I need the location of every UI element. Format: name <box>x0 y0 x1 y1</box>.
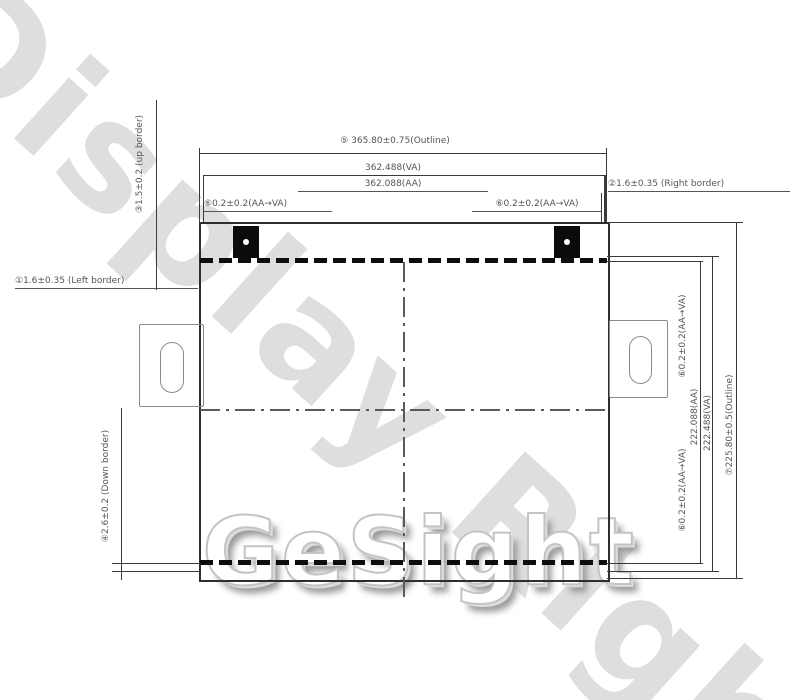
pad-hole <box>564 239 570 245</box>
dim-label-up-border: ③1.5±0.2 (up border) <box>135 115 145 213</box>
mounting-slot-left <box>160 342 184 393</box>
extension-line <box>607 222 743 223</box>
extension-line <box>112 571 200 572</box>
dim-line-outline-width <box>199 153 607 154</box>
dim-line-va-width <box>203 175 605 176</box>
dim-label-outline-height: ⑦225.80±0.5(Outline) <box>725 375 735 476</box>
extension-line <box>199 148 200 222</box>
dim-line-up-border <box>156 100 157 290</box>
dim-line-aa-height <box>700 262 701 564</box>
centerline-vertical <box>403 262 405 598</box>
dim-label-offset-top-right: ⑥0.2±0.2(AA→VA) <box>472 199 602 212</box>
drawing-layer: ⑤ 365.80±0.75(Outline) 362.488(VA) 362.0… <box>0 0 800 700</box>
dim-label-aa-height: 222.088(AA) <box>690 389 700 446</box>
dim-label-va-height: 222.488(VA) <box>703 395 713 451</box>
mechanical-drawing-canvas: Display Right GeSight ⑤ 365.80±0.75(Outl… <box>0 0 800 700</box>
extension-line <box>606 148 607 222</box>
dim-label-down-border: ④2.6±0.2 (Down border) <box>101 430 111 542</box>
dim-label-aa-width: 362.088(AA) <box>298 179 488 192</box>
mounting-slot-right <box>629 336 652 384</box>
extension-line <box>607 256 719 257</box>
extension-line <box>601 193 602 222</box>
dim-label-right-border: ②1.6±0.35 (Right border) <box>608 179 790 192</box>
extension-line <box>112 563 200 564</box>
dim-label-offset-right-bottom: ⑥0.2±0.2(AA→VA) <box>678 448 688 531</box>
extension-line <box>607 563 703 564</box>
mounting-pad-left <box>233 226 259 258</box>
dim-label-offset-top-left: ⑥0.2±0.2(AA→VA) <box>204 199 332 212</box>
pad-hole <box>243 239 249 245</box>
dim-label-offset-right-top: ⑥0.2±0.2(AA→VA) <box>678 294 688 377</box>
extension-line <box>607 578 743 579</box>
dim-line-down-border <box>121 408 122 580</box>
extension-line <box>604 175 606 222</box>
extension-line <box>607 261 703 262</box>
dim-line-outline-height <box>736 222 737 579</box>
dim-label-va-width: 362.488(VA) <box>298 163 488 174</box>
dim-label-left-border: ①1.6±0.35 (Left border) <box>15 276 198 289</box>
extension-line <box>607 571 719 572</box>
dim-label-outline-width: ⑤ 365.80±0.75(Outline) <box>240 136 550 147</box>
mounting-pad-right <box>554 226 580 258</box>
